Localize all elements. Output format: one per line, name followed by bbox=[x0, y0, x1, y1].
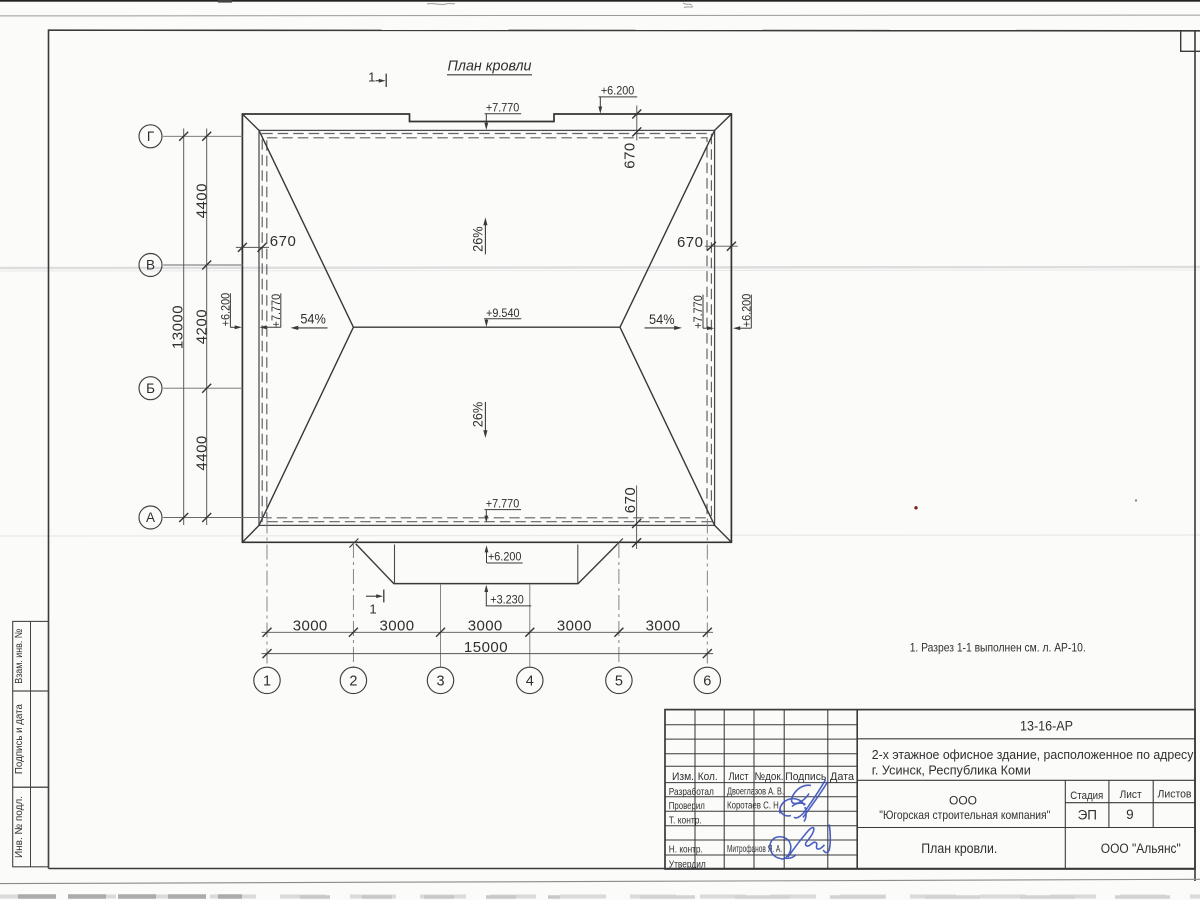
svg-text:5: 5 bbox=[615, 673, 623, 689]
svg-text:Изм.: Изм. bbox=[672, 771, 694, 783]
svg-text:2: 2 bbox=[349, 673, 357, 689]
svg-text:+6.200: +6.200 bbox=[488, 550, 522, 564]
svg-text:15000: 15000 bbox=[464, 639, 508, 656]
svg-text:Митрофанов Я. А.: Митрофанов Я. А. bbox=[727, 843, 782, 855]
svg-text:1: 1 bbox=[368, 69, 375, 84]
svg-text:670: 670 bbox=[677, 234, 704, 251]
svg-text:Кол.: Кол. bbox=[698, 771, 718, 783]
svg-text:4: 4 bbox=[526, 673, 534, 689]
svg-text:3000: 3000 bbox=[557, 618, 592, 635]
svg-text:+7.770: +7.770 bbox=[486, 101, 520, 115]
svg-text:+9.540: +9.540 bbox=[486, 306, 520, 320]
svg-text:Подпись: Подпись bbox=[785, 771, 826, 783]
svg-text:1. Разрез 1-1 выполнен см. л.: 1. Разрез 1-1 выполнен см. л. АР-10. bbox=[910, 641, 1086, 655]
svg-text:54%: 54% bbox=[300, 311, 326, 326]
svg-text:Подпись и дата: Подпись и дата bbox=[14, 704, 25, 774]
svg-text:Инв. № подл.: Инв. № подл. bbox=[14, 796, 25, 858]
svg-text:4200: 4200 bbox=[193, 309, 210, 344]
svg-text:№док.: №док. bbox=[755, 771, 784, 783]
svg-text:Проверил: Проверил bbox=[669, 801, 705, 812]
svg-text:3: 3 bbox=[436, 673, 444, 689]
svg-text:26%: 26% bbox=[470, 402, 485, 428]
svg-text:Коротаев С. Н.: Коротаев С. Н. bbox=[727, 800, 781, 811]
svg-text:3000: 3000 bbox=[380, 618, 415, 635]
svg-text:Листов: Листов bbox=[1158, 789, 1192, 801]
svg-text:А: А bbox=[146, 510, 155, 525]
svg-text:Разработал: Разработал bbox=[669, 786, 714, 798]
svg-text:+6.200: +6.200 bbox=[601, 84, 635, 98]
svg-text:4400: 4400 bbox=[193, 183, 210, 218]
svg-text:Т. контр.: Т. контр. bbox=[669, 815, 702, 826]
svg-text:6: 6 bbox=[703, 673, 711, 689]
svg-text:670: 670 bbox=[622, 487, 639, 514]
svg-text:Двоеглазов А. В.: Двоеглазов А. В. bbox=[727, 786, 784, 797]
svg-text:Н. контр.: Н. контр. bbox=[669, 845, 703, 856]
svg-text:План кровли: План кровли bbox=[448, 58, 533, 75]
svg-text:Утвердил: Утвердил bbox=[669, 859, 706, 870]
svg-text:Взам. инв. №: Взам. инв. № bbox=[14, 629, 25, 684]
svg-text:54%: 54% bbox=[649, 312, 675, 327]
svg-text:Лист: Лист bbox=[729, 771, 749, 783]
svg-text:"Югорская строительная компани: "Югорская строительная компания" bbox=[879, 808, 1050, 822]
svg-text:3000: 3000 bbox=[468, 618, 503, 635]
svg-text:ООО: ООО bbox=[949, 794, 977, 808]
svg-text:+7.770: +7.770 bbox=[486, 497, 520, 511]
svg-text:г. Усинск, Республика Коми: г. Усинск, Республика Коми bbox=[872, 762, 1031, 777]
svg-text:Лист: Лист bbox=[1120, 789, 1142, 801]
svg-text:ЭП: ЭП bbox=[1078, 807, 1097, 822]
svg-text:26%: 26% bbox=[470, 226, 485, 252]
svg-text:13-16-АР: 13-16-АР bbox=[1020, 718, 1073, 733]
svg-text:Стадия: Стадия bbox=[1070, 790, 1103, 802]
svg-text:Дата: Дата bbox=[830, 771, 855, 783]
svg-text:В: В bbox=[146, 258, 155, 273]
svg-text:ООО "Альянс": ООО "Альянс" bbox=[1101, 841, 1181, 856]
svg-text:4400: 4400 bbox=[193, 435, 210, 470]
svg-text:13000: 13000 bbox=[170, 305, 187, 349]
svg-text:1: 1 bbox=[263, 673, 271, 689]
svg-text:3000: 3000 bbox=[293, 618, 328, 635]
svg-text:Б: Б bbox=[146, 381, 155, 396]
svg-text:План кровли.: План кровли. bbox=[921, 841, 997, 856]
svg-text:670: 670 bbox=[270, 233, 297, 250]
svg-text:1: 1 bbox=[369, 602, 376, 617]
svg-text:3000: 3000 bbox=[646, 618, 681, 635]
svg-text:Г: Г bbox=[147, 129, 155, 144]
svg-text:670: 670 bbox=[621, 142, 638, 169]
svg-text:+3.230: +3.230 bbox=[490, 593, 524, 607]
svg-text:2-х этажное офисное здание, ра: 2-х этажное офисное здание, расположенно… bbox=[872, 747, 1197, 762]
svg-text:9: 9 bbox=[1126, 807, 1134, 822]
